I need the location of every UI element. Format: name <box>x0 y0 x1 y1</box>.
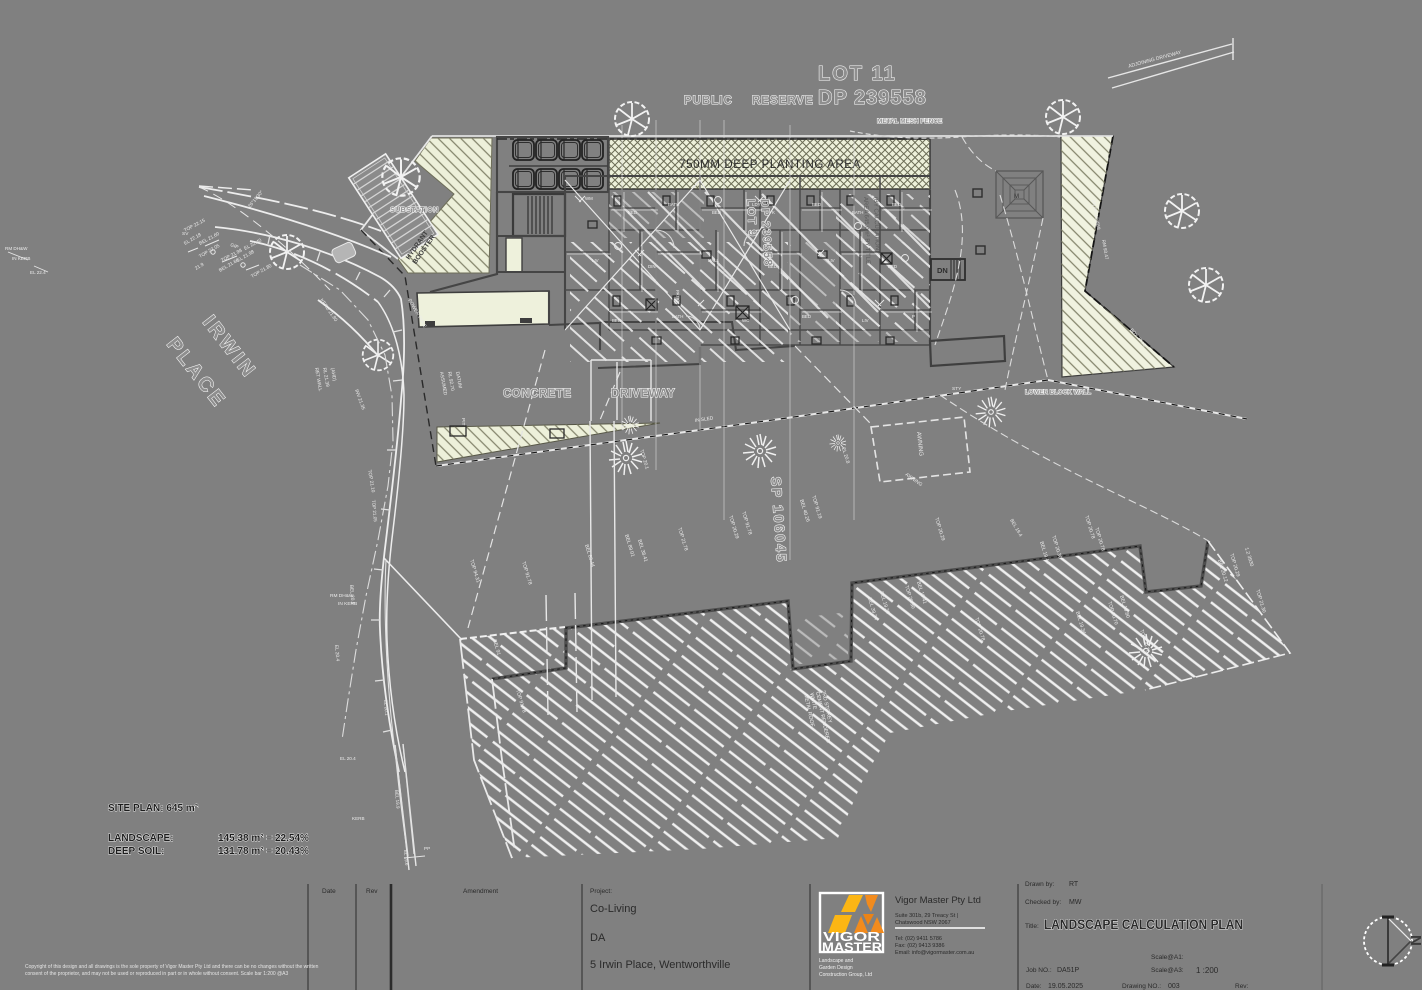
svg-text:BED: BED <box>768 264 777 269</box>
svg-text:consent of the proprietor, and: consent of the proprietor, and may not b… <box>25 971 289 977</box>
svg-text:Project:: Project: <box>590 888 612 895</box>
svg-text:Chatswood NSW 2067: Chatswood NSW 2067 <box>895 920 951 926</box>
svg-text:N: N <box>1407 935 1422 946</box>
svg-text:LOT 11: LOT 11 <box>818 63 897 85</box>
svg-text:Garden Design: Garden Design <box>819 965 853 971</box>
svg-text:STY: STY <box>952 386 962 392</box>
svg-text:WM: WM <box>585 196 593 201</box>
svg-text:DEEP SOIL:: DEEP SOIL: <box>108 846 165 857</box>
svg-text:003: 003 <box>1168 983 1180 990</box>
svg-text:Drawn by:: Drawn by: <box>1025 881 1054 888</box>
svg-text:Scale@A1:: Scale@A1: <box>1151 954 1184 961</box>
svg-text:SUBSTATION: SUBSTATION <box>390 205 439 214</box>
svg-text:BED: BED <box>802 314 811 319</box>
svg-text:DA51P: DA51P <box>1057 967 1080 974</box>
svg-text:SITE PLAN: 645 m²: SITE PLAN: 645 m² <box>108 803 199 814</box>
svg-text:EL 22.4: EL 22.4 <box>30 270 46 275</box>
svg-text:RT: RT <box>1069 881 1079 888</box>
svg-text:BED: BED <box>812 202 821 207</box>
svg-text:EL 20.4: EL 20.4 <box>340 756 356 761</box>
svg-text:145.38 m² = 22.54%: 145.38 m² = 22.54% <box>218 833 309 844</box>
svg-text:Scale@A3:: Scale@A3: <box>1151 967 1184 974</box>
svg-text:Date:: Date: <box>1026 983 1042 990</box>
svg-text:BATH: BATH <box>668 202 679 207</box>
svg-text:1 :200: 1 :200 <box>1196 966 1219 975</box>
svg-text:Construction Group, Ltd: Construction Group, Ltd <box>819 972 872 978</box>
svg-text:MW: MW <box>1069 899 1082 906</box>
svg-text:LIV: LIV <box>828 258 835 263</box>
svg-text:19.05.2025: 19.05.2025 <box>1048 983 1083 990</box>
svg-text:LOWER BLOCK WALL: LOWER BLOCK WALL <box>1025 389 1091 396</box>
svg-text:BATH: BATH <box>672 314 683 319</box>
svg-text:PUBLIC: PUBLIC <box>684 95 733 107</box>
svg-text:Job NO.:: Job NO.: <box>1026 967 1052 974</box>
svg-text:BED: BED <box>712 210 721 215</box>
svg-text:Drawing NO.:: Drawing NO.: <box>1122 983 1161 990</box>
svg-text:LIV: LIV <box>592 258 599 263</box>
svg-text:RM DH&W: RM DH&W <box>5 246 28 251</box>
svg-text:M: M <box>1014 194 1019 200</box>
svg-text:Email: info@vigormaster.com.au: Email: info@vigormaster.com.au <box>895 950 974 956</box>
svg-text:131.78 m² = 20.43%: 131.78 m² = 20.43% <box>218 846 309 857</box>
svg-text:DN: DN <box>937 266 948 275</box>
svg-text:Checked by:: Checked by: <box>1025 899 1061 906</box>
svg-text:DRIVEWAY: DRIVEWAY <box>611 388 675 400</box>
svg-text:HALL: HALL <box>708 258 720 263</box>
svg-text:BED: BED <box>612 318 621 323</box>
svg-text:PATIO: PATIO <box>675 290 680 303</box>
svg-text:Landscape and: Landscape and <box>819 958 853 964</box>
svg-text:Tel: (02) 9411 5786: Tel: (02) 9411 5786 <box>895 936 942 942</box>
svg-text:750MM DEEP PLANTING AREA: 750MM DEEP PLANTING AREA <box>679 159 861 171</box>
svg-text:Copyright of this design and a: Copyright of this design and all drawing… <box>25 964 319 970</box>
svg-text:Title:: Title: <box>1025 923 1039 930</box>
svg-text:Rev:: Rev: <box>1235 983 1249 990</box>
svg-text:RM DH&W: RM DH&W <box>330 593 354 599</box>
svg-text:LDY: LDY <box>752 202 761 207</box>
svg-text:Fax: (02) 9413 9386: Fax: (02) 9413 9386 <box>895 943 945 949</box>
svg-text:BED: BED <box>888 264 897 269</box>
svg-text:LANDSCAPE CALCULATION PLAN: LANDSCAPE CALCULATION PLAN <box>1044 917 1243 932</box>
svg-text:Vigor Master Pty Ltd: Vigor Master Pty Ltd <box>895 895 981 906</box>
svg-text:Amendment: Amendment <box>463 888 498 895</box>
svg-text:IN KERB: IN KERB <box>338 601 357 607</box>
svg-text:PIT: PIT <box>460 418 466 426</box>
svg-text:DIN: DIN <box>648 264 656 269</box>
svg-text:P: P <box>912 314 915 319</box>
svg-text:BED: BED <box>628 210 637 215</box>
svg-text:Co-Living: Co-Living <box>590 903 636 915</box>
svg-text:MASTER: MASTER <box>822 941 882 955</box>
svg-text:Suite 301b, 29 Treacy St |: Suite 301b, 29 Treacy St | <box>895 913 958 919</box>
svg-text:DP 239558: DP 239558 <box>818 87 927 109</box>
svg-text:CONCRETE: CONCRETE <box>503 388 572 400</box>
svg-text:BATH: BATH <box>852 210 863 215</box>
svg-text:Rev: Rev <box>366 888 378 895</box>
svg-text:METAL MESH FENCE: METAL MESH FENCE <box>877 118 943 125</box>
svg-text:WC: WC <box>742 318 749 323</box>
svg-text:LIV: LIV <box>862 318 869 323</box>
svg-text:LANDSCAPE:: LANDSCAPE: <box>108 833 174 844</box>
svg-text:BED: BED <box>892 202 901 207</box>
svg-text:Date: Date <box>322 888 336 895</box>
svg-text:5 Irwin Place, Wentworthville: 5 Irwin Place, Wentworthville <box>590 959 730 971</box>
svg-text:RESERVE: RESERVE <box>752 95 814 107</box>
svg-text:PP: PP <box>424 846 430 851</box>
svg-text:DA: DA <box>590 932 606 944</box>
svg-text:KERB: KERB <box>352 816 365 821</box>
svg-text:K: K <box>772 210 775 215</box>
